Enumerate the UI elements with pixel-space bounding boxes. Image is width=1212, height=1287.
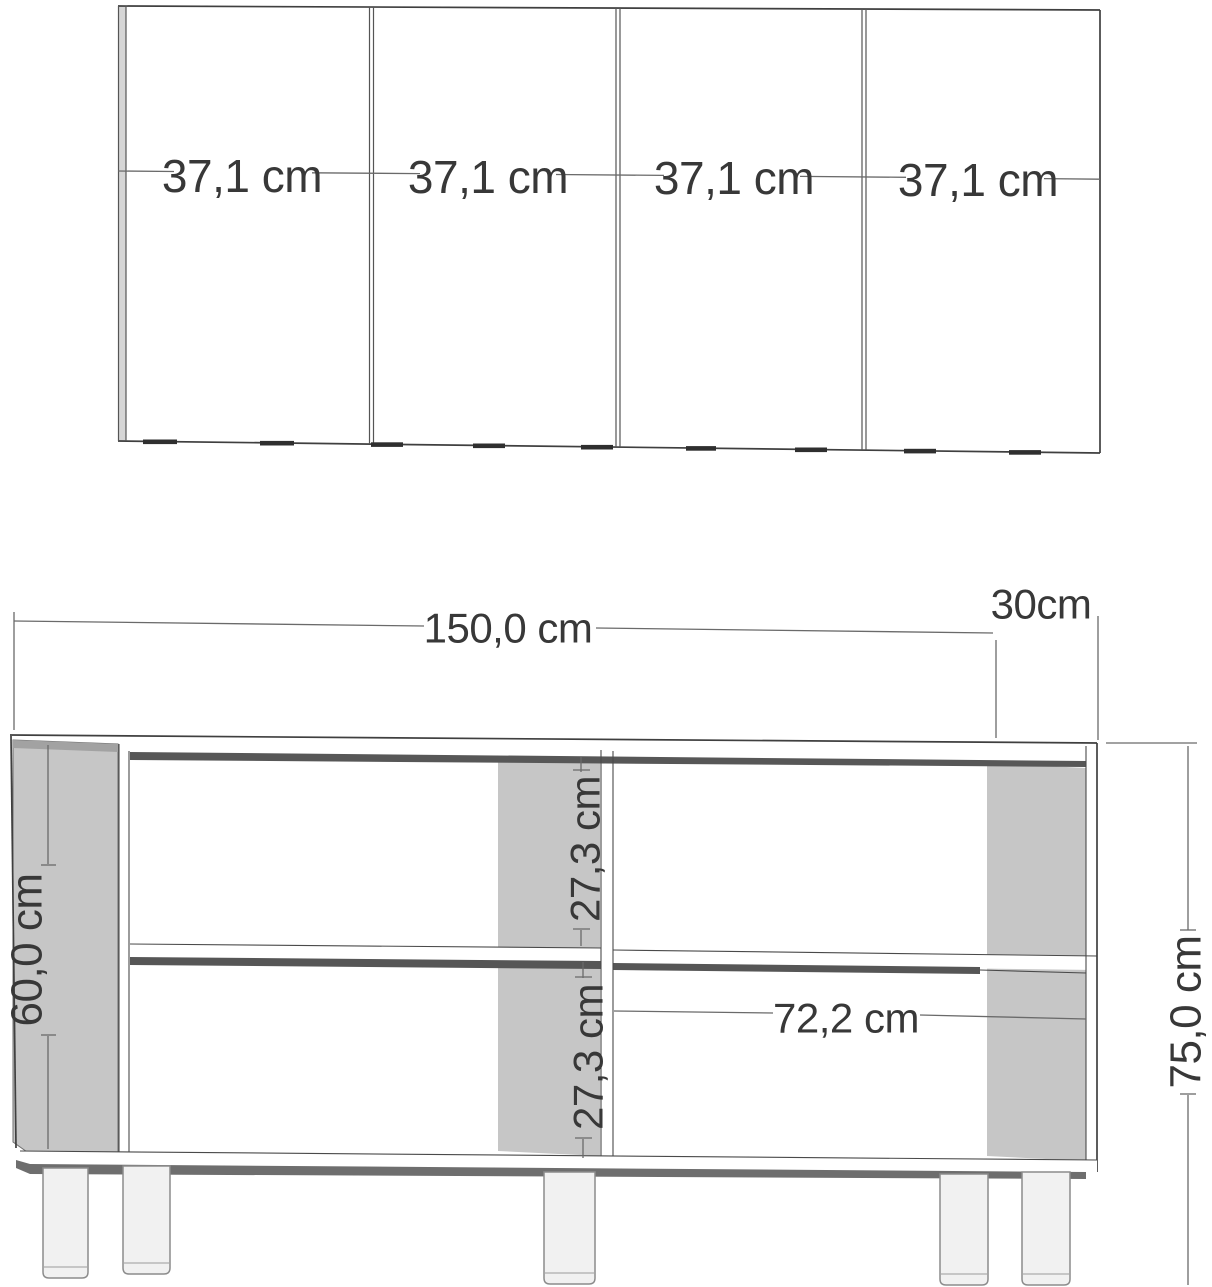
hinge-mark bbox=[473, 444, 505, 449]
scanned-drawing-page: 37,1 cm 37,1 cm 37,1 cm 37,1 cm bbox=[0, 0, 1212, 1287]
dim-line bbox=[596, 628, 993, 633]
hinge-mark bbox=[581, 445, 613, 450]
hinge-mark bbox=[371, 442, 403, 447]
inner-width-label: 72,2 cm bbox=[773, 995, 919, 1042]
dim-upper-compartment: 27,3 cm bbox=[562, 757, 609, 946]
plan-section-width-label-4: 37,1 cm bbox=[898, 154, 1058, 206]
plan-dim-line-seg2 bbox=[312, 173, 420, 174]
depth-label: 30cm bbox=[991, 581, 1092, 628]
hinge-mark bbox=[260, 441, 294, 446]
dim-overall-width: 150,0 cm bbox=[14, 605, 996, 739]
plan-view: 37,1 cm 37,1 cm 37,1 cm 37,1 cm bbox=[118, 6, 1100, 455]
dim-line bbox=[14, 621, 424, 626]
legs bbox=[43, 1166, 1070, 1285]
leg-back-right bbox=[1022, 1172, 1070, 1285]
upper-shelf-height-label: 27,3 cm bbox=[562, 776, 609, 922]
leg-front-left bbox=[43, 1168, 88, 1278]
hinge-mark bbox=[143, 440, 177, 445]
overall-width-label: 150,0 cm bbox=[424, 605, 593, 652]
plan-section-width-label-3: 37,1 cm bbox=[654, 152, 814, 204]
plan-body bbox=[118, 6, 1100, 446]
dim-line bbox=[614, 1011, 773, 1013]
lower-shelf-height-label: 27,3 cm bbox=[565, 984, 612, 1130]
dim-lower-compartment: 27,3 cm bbox=[565, 962, 612, 1158]
hinge-mark bbox=[795, 448, 827, 453]
dim-depth: 30cm bbox=[991, 581, 1098, 741]
leg-front-right bbox=[940, 1174, 988, 1285]
dim-overall-height: 75,0 cm bbox=[1106, 743, 1211, 1285]
furniture-dimension-drawing: 37,1 cm 37,1 cm 37,1 cm 37,1 cm bbox=[0, 0, 1212, 1287]
overall-height-label: 75,0 cm bbox=[1162, 935, 1211, 1088]
hinge-mark bbox=[686, 446, 716, 451]
leg-back-left bbox=[123, 1166, 170, 1274]
plan-dim-line-seg4 bbox=[800, 176, 906, 177]
leg-center bbox=[544, 1172, 595, 1284]
plan-section-width-label-1: 37,1 cm bbox=[162, 150, 322, 202]
carcass-height-label: 60,0 cm bbox=[3, 873, 52, 1026]
hinge-mark bbox=[904, 449, 936, 454]
hinge-mark bbox=[1009, 450, 1041, 455]
front-view: 150,0 cm 30cm 75,0 cm 60,0 cm bbox=[3, 581, 1211, 1286]
plan-left-edge-strip bbox=[118, 6, 126, 441]
plan-dim-line-seg3 bbox=[556, 175, 664, 176]
plan-section-width-label-2: 37,1 cm bbox=[408, 151, 568, 203]
